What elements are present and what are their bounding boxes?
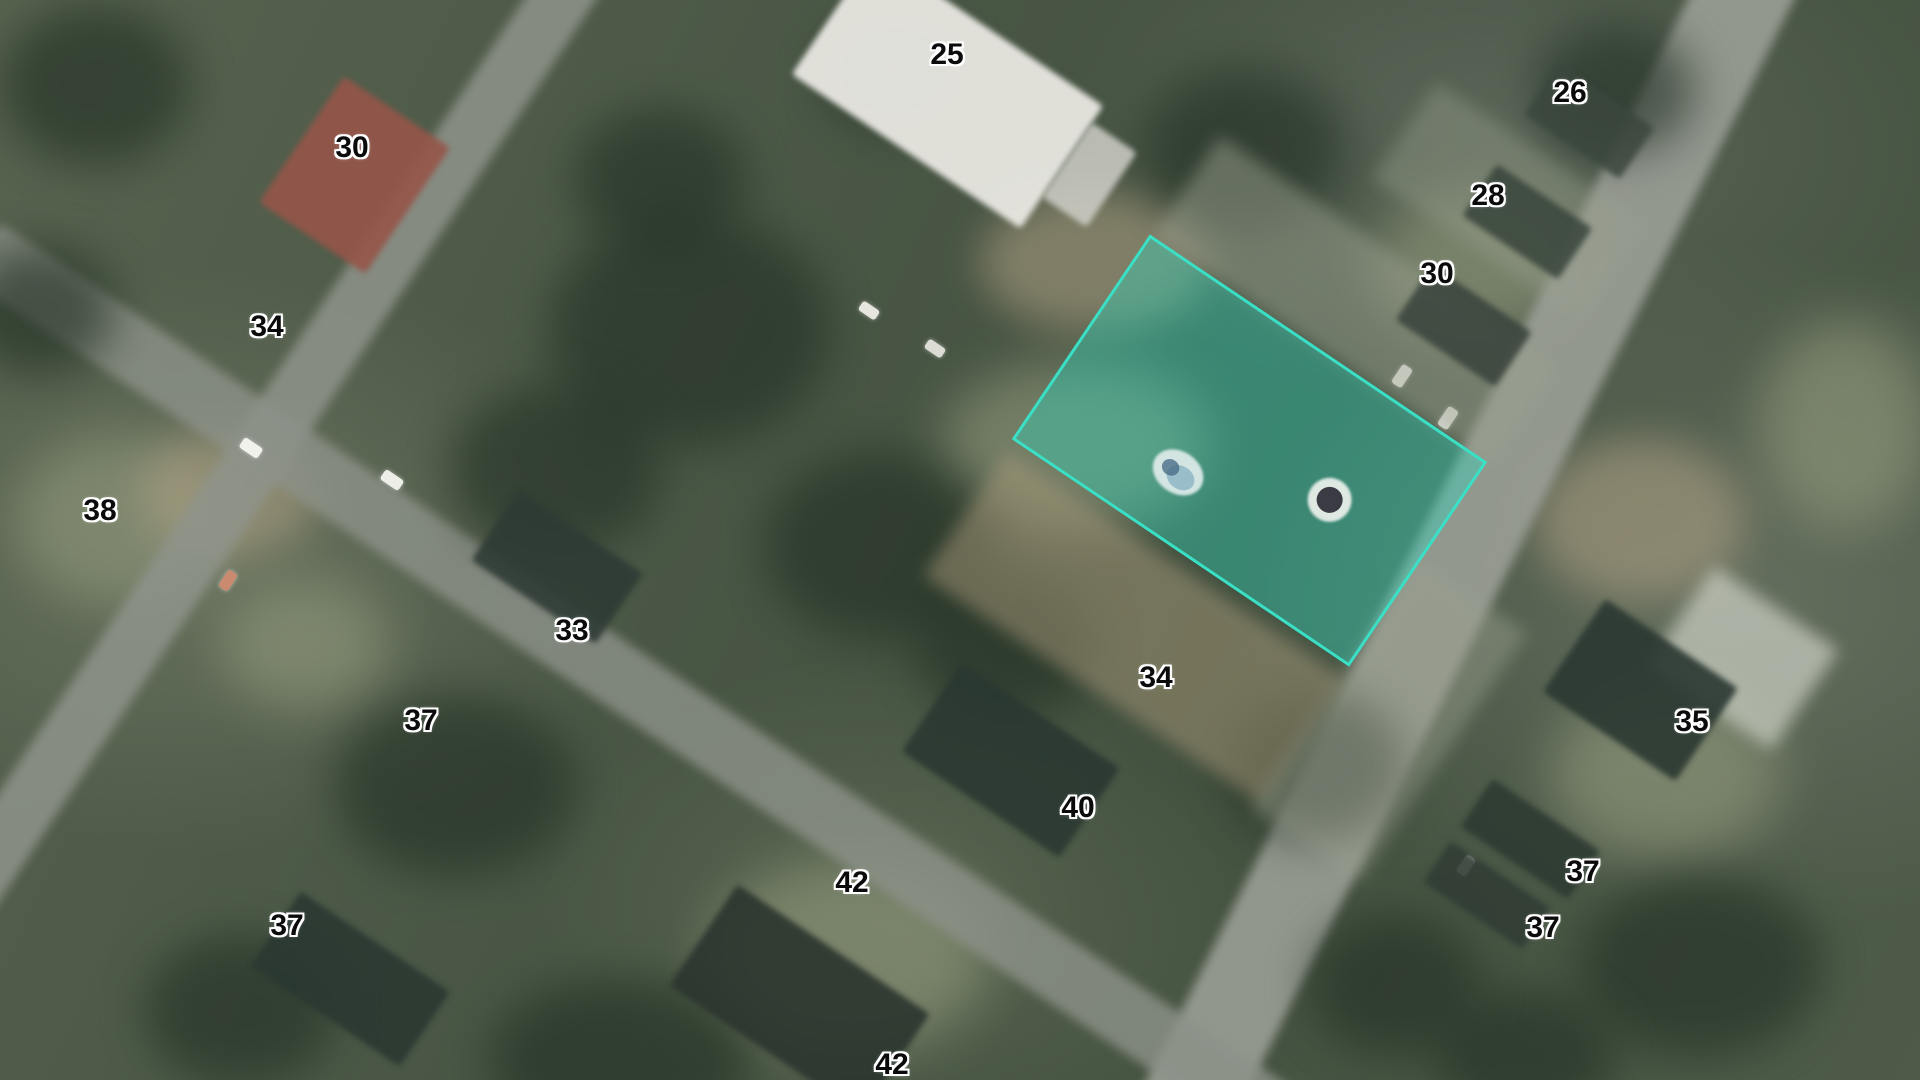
parcel-label: 25 (930, 40, 963, 70)
parcel-label: 35 (1675, 707, 1708, 737)
parcel-label: 26 (1553, 78, 1586, 108)
parcel-label: 37 (1526, 913, 1559, 943)
aerial-parcel-map[interactable]: 2526283030343833373440423735373742 (0, 0, 1920, 1080)
parcel-label: 37 (1566, 857, 1599, 887)
parcel-label: 33 (555, 616, 588, 646)
parcel-label: 34 (1139, 663, 1172, 693)
parcel-label: 37 (404, 706, 437, 736)
parcel-label: 42 (875, 1050, 908, 1080)
parcel-label: 38 (83, 496, 116, 526)
parcel-label: 30 (1420, 259, 1453, 289)
parcel-label: 28 (1471, 181, 1504, 211)
parcel-label: 42 (835, 868, 868, 898)
parcel-label: 37 (270, 911, 303, 941)
parcel-label: 30 (335, 133, 368, 163)
parcel-label: 34 (250, 312, 283, 342)
parcel-label: 40 (1061, 793, 1094, 823)
